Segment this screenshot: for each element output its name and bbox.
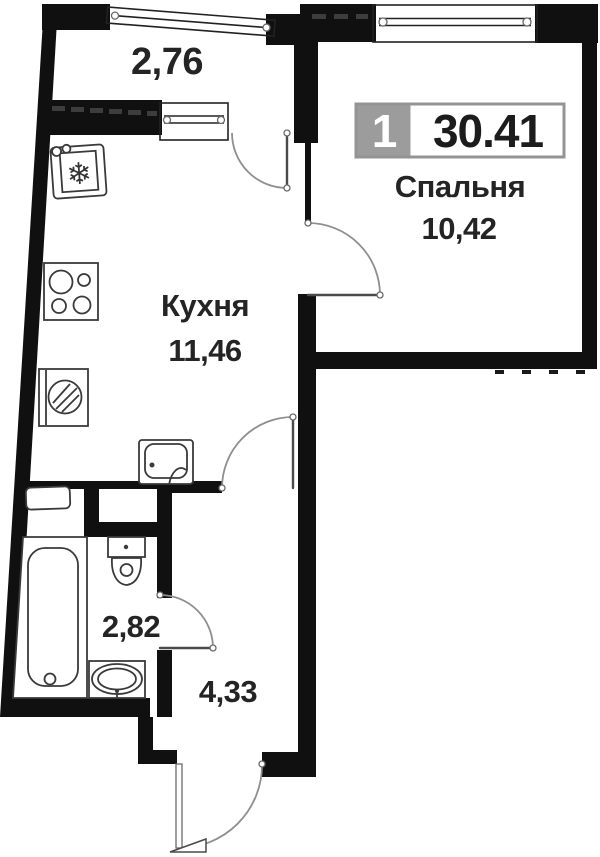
badge-room-count: 1	[372, 105, 397, 157]
bathtub-icon	[13, 537, 87, 698]
badge-total-area: 30.41	[433, 105, 544, 157]
kitchen-name-label: Кухня	[161, 288, 249, 323]
snowflake-icon: ❄	[66, 157, 93, 192]
floor-plan-canvas: ❄	[0, 0, 600, 857]
wall-entry-right-pier	[262, 752, 316, 777]
bathroom-shelf	[26, 486, 71, 510]
wall-bedroom-right	[582, 40, 597, 368]
area-badge: 1 30.41	[356, 104, 564, 157]
wall-balcony-divider	[40, 100, 162, 135]
balcony-window	[106, 7, 275, 36]
wall-bedroom-bottom	[300, 352, 597, 369]
bedroom-area-label: 10,42	[421, 211, 496, 246]
washing-machine-icon	[39, 369, 88, 426]
wall-hall-right	[298, 294, 316, 777]
bathroom-area-label: 2,82	[102, 609, 160, 644]
wall-bedroom-top-left	[300, 4, 376, 42]
toilet-icon	[108, 537, 145, 585]
entry-door	[170, 761, 265, 852]
fridge-icon: ❄	[50, 142, 107, 199]
below-wall-tick-marks	[495, 370, 585, 374]
balcony-area-label: 2,76	[131, 41, 203, 83]
hall-area-label: 4,33	[199, 674, 258, 709]
wall-bedroom-top-right	[535, 4, 598, 43]
bedroom-name-label: Спальня	[395, 169, 525, 204]
wall-bedroom-left-upper	[294, 42, 318, 143]
bathroom-door	[157, 592, 216, 651]
stove-icon	[44, 263, 98, 320]
wall-bedroom-door-jamb	[305, 143, 311, 223]
floor-plan-svg: ❄	[0, 0, 600, 857]
kitchen-hall-door	[219, 414, 296, 491]
bathroom-sink-icon	[89, 661, 145, 698]
wall-bath-hall-partition-upper	[157, 489, 172, 598]
wall-bathroom-bottom	[6, 698, 150, 717]
kitchen-sink-icon	[139, 440, 193, 485]
balcony-door	[232, 130, 290, 191]
wall-bath-hall-partition-lower	[157, 650, 172, 717]
wall-balcony-top-left	[42, 4, 110, 30]
bedroom-window	[373, 5, 537, 42]
wall-entry-left-jamb	[138, 750, 177, 764]
bedroom-door	[305, 220, 383, 298]
kitchen-balcony-window	[160, 103, 228, 140]
kitchen-area-label: 11,46	[168, 333, 242, 368]
